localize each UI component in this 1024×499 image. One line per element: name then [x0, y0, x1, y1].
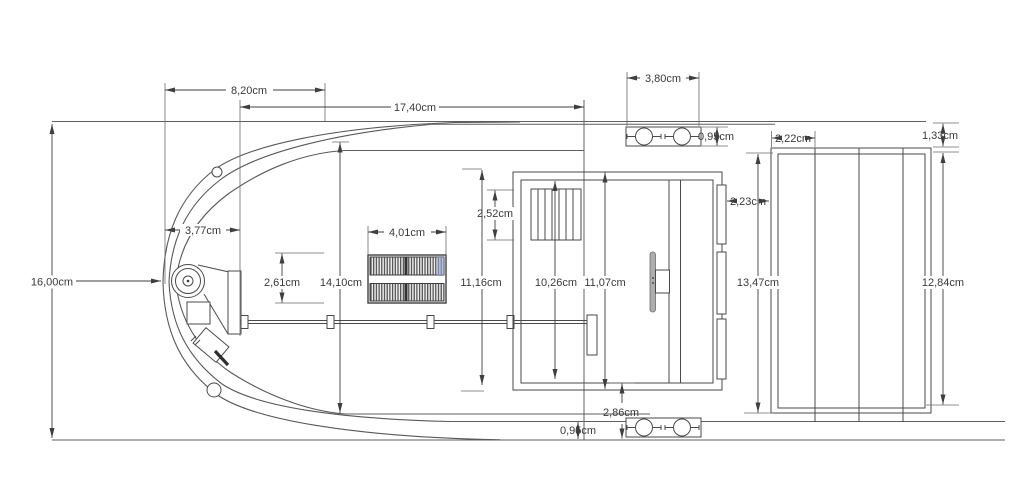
dim-label-panel-top-gap: 1,33cm: [922, 130, 958, 142]
drive-shaft: [240, 315, 597, 355]
hull-plan-drawing: 16,00cm 8,20cm 17,40cm 3,77cm 14,10cm 2,…: [0, 0, 1024, 499]
outboard-motor: [193, 328, 229, 363]
gunwale-fitting-top: [212, 167, 222, 177]
cleat-hole: [674, 128, 691, 145]
cleat-hole: [636, 128, 653, 145]
dim-label-nose-width: 3,77cm: [185, 225, 221, 237]
dim-label-cabin-outer-length: 11,07cm: [584, 277, 625, 289]
bow-winch-assembly: [172, 265, 242, 366]
dim-cockpit-length: 11,16cm: [455, 169, 507, 391]
dim-label-cockpit-length: 11,16cm: [460, 277, 501, 289]
deck-hatch-grate: [368, 255, 446, 303]
dim-panel-outer-height: 13,47cm: [732, 153, 785, 413]
battery-box: [187, 302, 210, 324]
cleat-bracket-top: [626, 127, 701, 146]
engine-mount: [228, 271, 241, 334]
dim-hatch-height: 2,61cm: [258, 253, 324, 303]
cabin-hinge-slat: [717, 185, 726, 244]
dim-panel-inner-height: 12,84cm: [916, 152, 970, 405]
shaft-end-block: [587, 315, 597, 355]
dim-hull-bottom-gap: 0,95cm: [560, 422, 596, 439]
cabin-vent-grate: [531, 189, 581, 240]
cleat-hole: [636, 419, 653, 436]
dim-nose-width: 3,77cm: [165, 224, 240, 237]
dim-cleat-height: 0,95cm: [698, 127, 734, 146]
gunwale-fitting-bottom: [207, 383, 221, 397]
helm-console: [650, 252, 670, 312]
dim-label-panel-outer-height: 13,47cm: [737, 277, 779, 289]
dim-cabin-outer-length: 11,07cm: [578, 173, 631, 390]
dim-label-deck-length: 14,10cm: [320, 277, 362, 289]
shaft-bearing: [427, 316, 434, 329]
dim-label-cleat-width: 3,80cm: [645, 73, 681, 85]
dim-label-bow-offset: 8,20cm: [231, 85, 267, 97]
dim-label-cabin-inner-length: 10,26cm: [535, 277, 577, 289]
technical-drawing-canvas: 16,00cm 8,20cm 17,40cm 3,77cm 14,10cm 2,…: [0, 0, 1024, 499]
dim-label-hatch-width: 4,01cm: [389, 227, 425, 239]
cleat-hole: [674, 419, 691, 436]
shaft-bearing: [327, 316, 334, 329]
dim-panel-top-gap: 1,33cm: [922, 123, 959, 147]
dim-panel-inset: 2,22cm: [772, 131, 816, 147]
dim-label-cleat-height: 0,95cm: [698, 131, 734, 143]
dim-label-overall-length: 17,40cm: [394, 102, 436, 114]
cleat-bracket-bottom: [626, 418, 701, 437]
dim-vent-height: 2,52cm: [471, 190, 519, 240]
dim-deck-length: 14,10cm: [316, 142, 365, 413]
dim-label-cabin-panel-gap: 2,23cm: [730, 196, 766, 208]
dim-cabin-panel-gap: 2,23cm: [727, 196, 769, 208]
shaft-bearing: [241, 316, 248, 329]
dim-cabin-inner-length: 10,26cm: [529, 181, 582, 379]
dim-label-panel-inset: 2,22cm: [775, 133, 811, 145]
dim-hatch-width: 4,01cm: [368, 226, 446, 254]
deck-panel: [771, 148, 931, 422]
cabin-hinge-slat: [717, 319, 726, 379]
dim-label-hatch-height: 2,61cm: [264, 277, 300, 289]
dim-label-beam: 16,00cm: [31, 277, 73, 289]
dim-cleat-width: 3,80cm: [627, 72, 699, 126]
dim-label-stern-clearance: 2,86cm: [603, 407, 639, 419]
panel-outer: [771, 148, 931, 413]
dim-label-panel-inner-height: 12,84cm: [922, 277, 964, 289]
cabin-hinge-slat: [717, 252, 726, 314]
dim-beam: 16,00cm: [28, 124, 161, 438]
